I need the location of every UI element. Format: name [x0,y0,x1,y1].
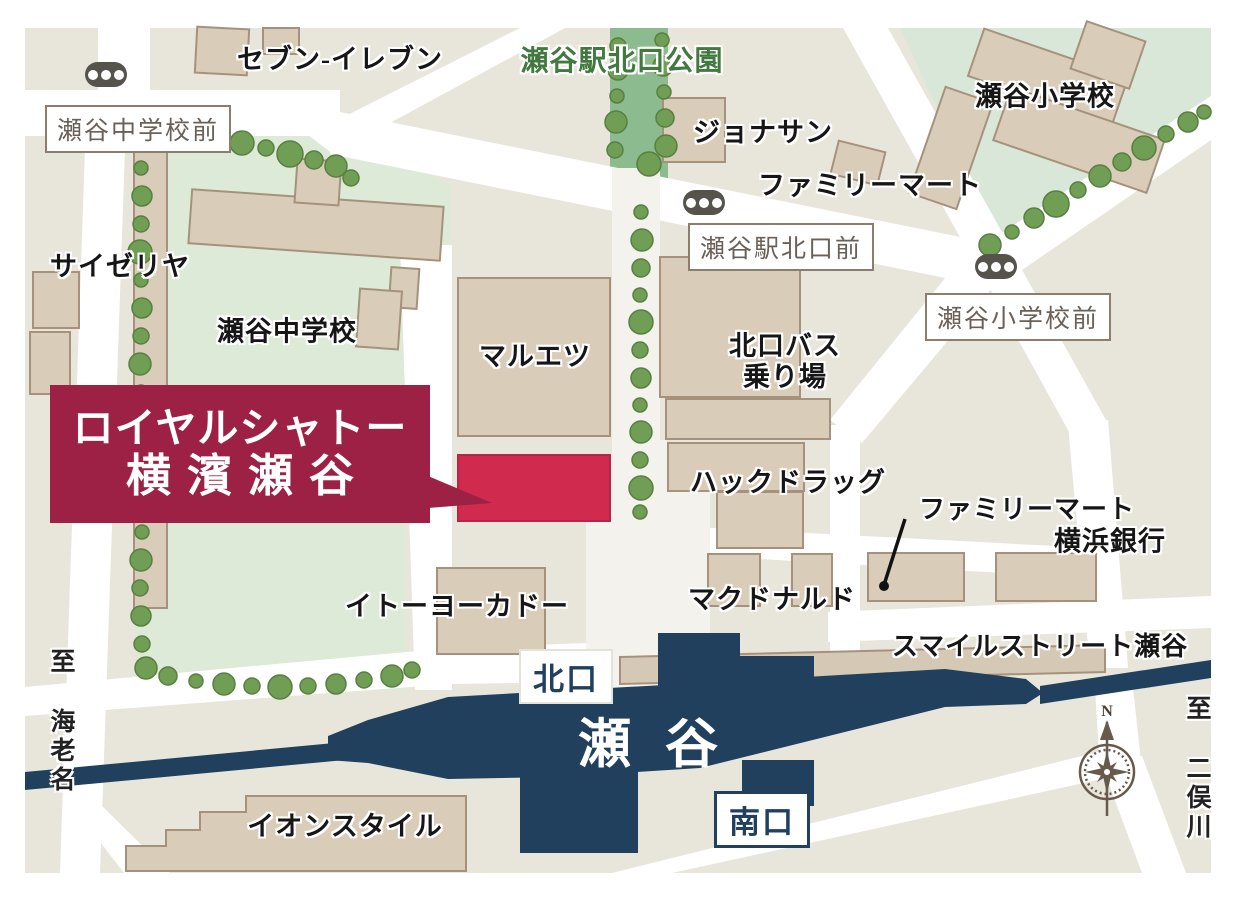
property-building [458,455,610,521]
label-bus-terminal-line1: 北口バス [729,331,841,361]
traffic-light-icon [683,190,725,215]
property-callout: ロイヤルシャトー 横濱瀬谷 [50,385,430,523]
property-name-line1: ロイヤルシャトー [73,406,408,451]
traffic-light-icon [975,254,1017,279]
label-ito-yokado: イトーヨーカドー [345,591,569,622]
compass-north-label: N [1101,703,1113,721]
label-aeon-style: イオンスタイル [247,811,442,842]
direction-to-futamatagawa: 至 二俣川 [1178,695,1214,842]
familymart-east-building [868,553,964,601]
label-yokohama-bank: 横浜銀行 [1054,526,1166,557]
bus-stop-sign-seya-shogakko-mae: 瀬谷小学校前 [925,293,1111,341]
label-seya-station-north-park: 瀬谷駅北口公園 [520,46,723,78]
station-south-exit-label: 南口 [714,791,810,848]
label-seya-junior-high-school: 瀬谷中学校 [217,316,357,347]
direction-to-ebina: 至 海老名 [42,648,78,795]
label-bus-terminal-line2: 乗り場 [743,362,827,392]
label-smile-street-seya: スマイルストリート瀬谷 [892,632,1188,662]
bus-stop-sign-seya-chugakko-mae: 瀬谷中学校前 [45,105,231,153]
label-seven-eleven: セブン-イレブン [237,44,443,75]
label-maruetsu: マルエツ [479,341,591,372]
traffic-light-icon [85,62,127,87]
property-name-line2: 横濱瀬谷 [110,451,370,503]
yokohama-bank-building [996,553,1096,601]
station-name: 瀬谷 [544,702,752,778]
label-seya-elementary-school: 瀬谷小学校 [975,81,1115,112]
label-north-exit-bus-terminal: 北口バス 乗り場 [729,331,841,393]
label-mcdonalds: マクドナルド [688,584,856,615]
label-jonathan: ジョナサン [693,117,833,148]
access-map: 瀬谷中学校前 瀬谷駅北口前 瀬谷小学校前 セブン-イレブン 瀬谷駅北口公園 ジョ… [0,0,1238,900]
station-north-exit-label: 北口 [519,649,613,704]
label-familymart-north: ファミリーマート [758,170,982,201]
label-saizeriya: サイゼリヤ [50,251,190,282]
label-hac-drug: ハックドラッグ [690,467,886,498]
bus-stop-sign-seya-ekikita-mae: 瀬谷駅北口前 [688,223,874,271]
label-familymart-east: ファミリーマート [919,495,1135,525]
